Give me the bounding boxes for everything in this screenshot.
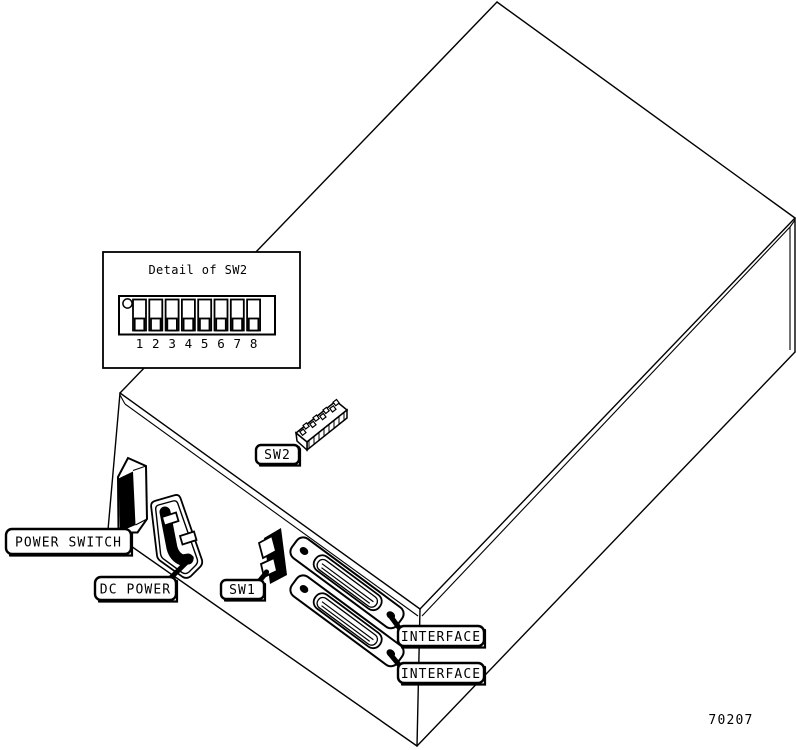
- detail-box-title: Detail of SW2: [148, 263, 247, 277]
- detail-callout-box: Detail of SW2: [103, 252, 300, 368]
- dip-knob-3: [167, 319, 177, 331]
- dip-knob-2: [151, 319, 161, 331]
- label-sw1: SW1: [221, 569, 269, 600]
- box-front-right-top-edge: [420, 218, 795, 609]
- dip-number-5: 5: [201, 336, 209, 351]
- dip-number-1: 1: [136, 336, 144, 351]
- power-switch-label: POWER SWITCH: [15, 536, 122, 551]
- dip-number-6: 6: [217, 336, 225, 351]
- sw2-dip-switch: [296, 400, 347, 450]
- dip-knob-4: [184, 319, 194, 331]
- device-line-drawing: Detail of SW2: [0, 0, 796, 750]
- dc-power-leader-tip: [188, 555, 194, 561]
- interface-top-label: INTERFACE: [401, 630, 481, 645]
- dip-knob-7: [233, 319, 243, 331]
- sw1-leader-tip: [264, 569, 269, 574]
- dip-orientation-mark: [123, 299, 132, 308]
- label-power-switch: POWER SWITCH: [6, 509, 132, 555]
- dip-number-2: 2: [152, 336, 160, 351]
- dip-number-4: 4: [185, 336, 193, 351]
- box-bottom-right-edge: [417, 352, 795, 746]
- label-interface-top: INTERFACE: [392, 618, 486, 648]
- rear-panel-diagram: Detail of SW2: [0, 0, 796, 750]
- dip-knob-5: [200, 319, 210, 331]
- dc-power-label: DC POWER: [100, 583, 171, 598]
- label-sw2: SW2: [256, 445, 301, 466]
- box-top-right-edge: [497, 2, 795, 218]
- sw2-label: SW2: [264, 448, 291, 463]
- interface-bottom-label: INTERFACE: [401, 667, 481, 682]
- dip-number-8: 8: [250, 336, 258, 351]
- dip-number-7: 7: [234, 336, 242, 351]
- dip-knob-8: [249, 319, 259, 331]
- sw1-label: SW1: [229, 583, 256, 598]
- dip-number-3: 3: [168, 336, 176, 351]
- power-switch-leader-tip: [126, 509, 132, 515]
- dip-knob-6: [216, 319, 226, 331]
- dip-knob-1: [135, 319, 145, 331]
- figure-number: 70207: [708, 713, 753, 728]
- label-interface-bottom: INTERFACE: [391, 655, 486, 685]
- lid-seam-right: [422, 227, 790, 616]
